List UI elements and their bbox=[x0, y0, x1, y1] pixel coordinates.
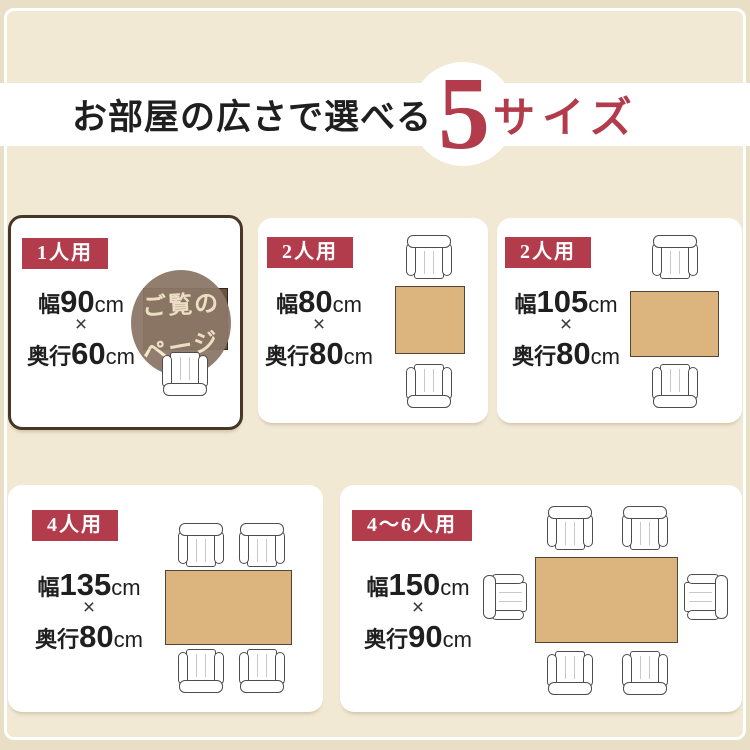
chair-icon bbox=[239, 523, 285, 567]
times-symbol: × bbox=[75, 315, 87, 335]
times-symbol: × bbox=[313, 315, 325, 335]
times-symbol: × bbox=[83, 598, 95, 618]
title-count: 5 bbox=[438, 73, 490, 154]
overlay-text: ご覧の bbox=[141, 282, 221, 321]
size-card-4-person: 4人用 幅135cm × 奥行80cm bbox=[8, 485, 323, 712]
chair-icon bbox=[239, 649, 285, 693]
chair-icon bbox=[406, 235, 452, 279]
width-dimension: 幅105cm bbox=[514, 284, 617, 314]
chair-icon bbox=[162, 352, 208, 396]
chair-icon bbox=[652, 235, 698, 279]
chair-icon bbox=[622, 651, 668, 695]
chair-icon bbox=[483, 574, 527, 620]
capacity-badge: 1人用 bbox=[22, 238, 108, 269]
size-guide-infographic: お部屋の広さで選べる 5 サイズ ご覧の ページ 1人用 幅90cm × 奥行6… bbox=[0, 0, 750, 750]
table-top-icon bbox=[165, 570, 292, 645]
capacity-badge: 4〜6人用 bbox=[352, 510, 472, 541]
width-dimension: 幅135cm bbox=[37, 567, 140, 597]
chair-icon bbox=[178, 649, 224, 693]
chair-icon bbox=[178, 523, 224, 567]
size-card-2-person-80: 2人用 幅80cm × 奥行80cm bbox=[258, 218, 488, 423]
chair-icon bbox=[547, 651, 593, 695]
depth-dimension: 奥行80cm bbox=[512, 336, 620, 366]
width-dimension: 幅150cm bbox=[366, 567, 469, 597]
capacity-badge: 2人用 bbox=[267, 237, 353, 268]
title-text: お部屋の広さで選べる bbox=[72, 89, 432, 140]
width-dimension: 幅80cm bbox=[276, 284, 362, 314]
chair-icon bbox=[547, 506, 593, 550]
table-top-icon bbox=[395, 286, 465, 354]
width-dimension: 幅90cm bbox=[38, 284, 124, 314]
title-suffix: サイズ bbox=[493, 84, 639, 145]
chair-icon bbox=[684, 574, 728, 620]
chair-icon bbox=[652, 364, 698, 408]
size-card-2-person-105: 2人用 幅105cm × 奥行80cm bbox=[497, 218, 742, 423]
section-title: お部屋の広さで選べる 5 サイズ bbox=[72, 62, 639, 166]
table-top-icon bbox=[630, 291, 719, 357]
capacity-badge: 2人用 bbox=[505, 237, 591, 268]
dimensions: 幅135cm × 奥行80cm bbox=[14, 567, 164, 649]
dimensions: 幅105cm × 奥行80cm bbox=[497, 284, 635, 366]
chair-icon bbox=[622, 506, 668, 550]
capacity-badge: 4人用 bbox=[32, 510, 118, 541]
depth-dimension: 奥行90cm bbox=[364, 619, 472, 649]
depth-dimension: 奥行80cm bbox=[265, 336, 373, 366]
size-card-4-6-person: 4〜6人用 幅150cm × 奥行90cm bbox=[340, 485, 742, 712]
times-symbol: × bbox=[560, 315, 572, 335]
times-symbol: × bbox=[412, 598, 424, 618]
dimensions: 幅150cm × 奥行90cm bbox=[344, 567, 492, 649]
chair-icon bbox=[406, 364, 452, 408]
table-top-icon bbox=[535, 557, 678, 643]
size-card-1-person: ご覧の ページ 1人用 幅90cm × 奥行60cm bbox=[8, 215, 243, 430]
depth-dimension: 奥行60cm bbox=[27, 336, 135, 366]
depth-dimension: 奥行80cm bbox=[35, 619, 143, 649]
dimensions: 幅80cm × 奥行80cm bbox=[258, 284, 380, 366]
dimensions: 幅90cm × 奥行60cm bbox=[11, 284, 151, 366]
